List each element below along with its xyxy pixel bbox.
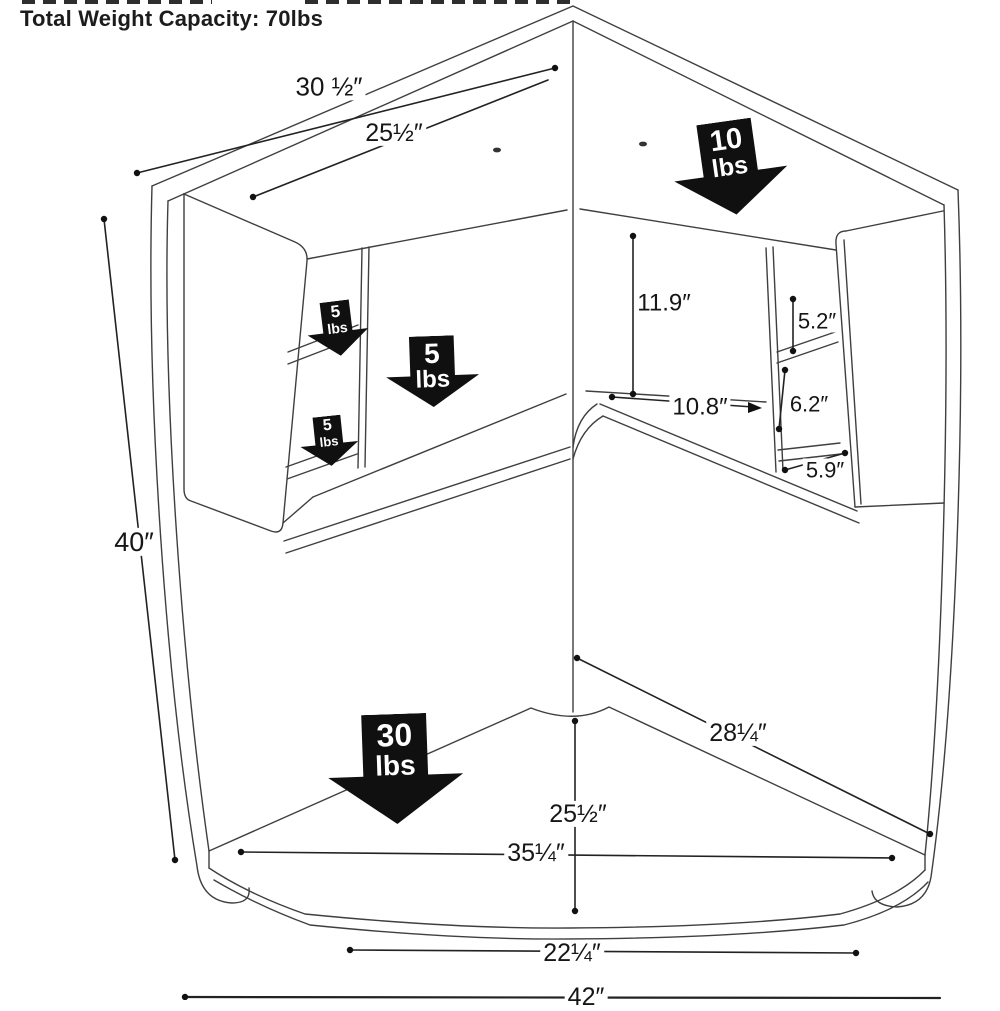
- dim-overall-height-label: 40″: [111, 528, 157, 556]
- weight-value: 5: [424, 339, 441, 368]
- desk-line-art: [0, 0, 1000, 1000]
- weight-unit: lbs: [375, 751, 416, 781]
- weight-unit: lbs: [415, 368, 451, 394]
- weight-value: 30: [376, 719, 413, 753]
- dim-lower-shelf-label: 5.9″: [803, 458, 847, 481]
- dim-side-depth-label: 28¼″: [706, 720, 770, 746]
- weight-value: 5: [322, 418, 333, 435]
- dim-hutch-width-label: 25½″: [362, 120, 426, 146]
- arrowhead-10-8: [748, 402, 762, 413]
- dim-middle-shelf-label: 6.2″: [787, 392, 831, 415]
- dim-desktop-width-label: 35¼″: [504, 840, 568, 866]
- dim-center-depth-label: 25½″: [546, 801, 610, 827]
- corner-desk-dimension-diagram: Total Weight Capacity: 70lbs 30 ½″ 25½″ …: [0, 0, 1000, 1000]
- dim-front-width-label: 22¼″: [540, 940, 604, 966]
- cropped-top-text-fragment: [305, 0, 570, 4]
- dim-cubby-height-label: 11.9″: [634, 290, 693, 315]
- dim-cubby-width-label: 10.8″: [669, 394, 730, 419]
- cropped-top-text-fragment: [22, 0, 212, 4]
- dim-top-width-label: 30 ½″: [292, 73, 365, 100]
- dim-upper-shelf-label: 5.2″: [795, 309, 839, 332]
- weight-unit: lbs: [319, 434, 339, 449]
- weight-unit: lbs: [327, 320, 349, 337]
- weight-unit: lbs: [710, 153, 749, 183]
- diagram-title: Total Weight Capacity: 70lbs: [20, 6, 323, 32]
- dim-overall-width-label: 42″: [565, 984, 608, 1010]
- cam-hole-dots: [493, 142, 647, 153]
